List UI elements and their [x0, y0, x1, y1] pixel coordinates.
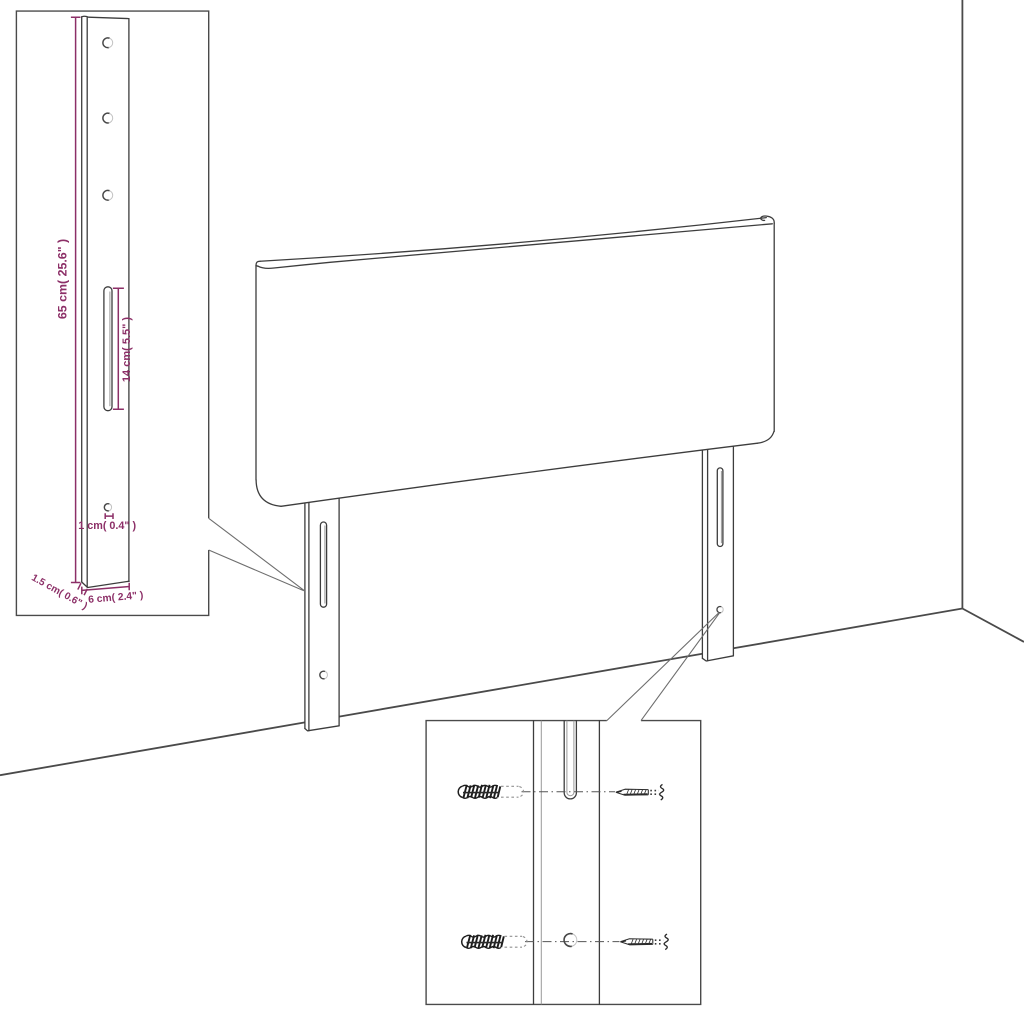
svg-text:65 cm( 25.6" ): 65 cm( 25.6" ): [56, 239, 70, 319]
svg-text:1 cm( 0.4" ): 1 cm( 0.4" ): [78, 520, 136, 532]
svg-text:14 cm( 5.5" ): 14 cm( 5.5" ): [121, 317, 133, 382]
